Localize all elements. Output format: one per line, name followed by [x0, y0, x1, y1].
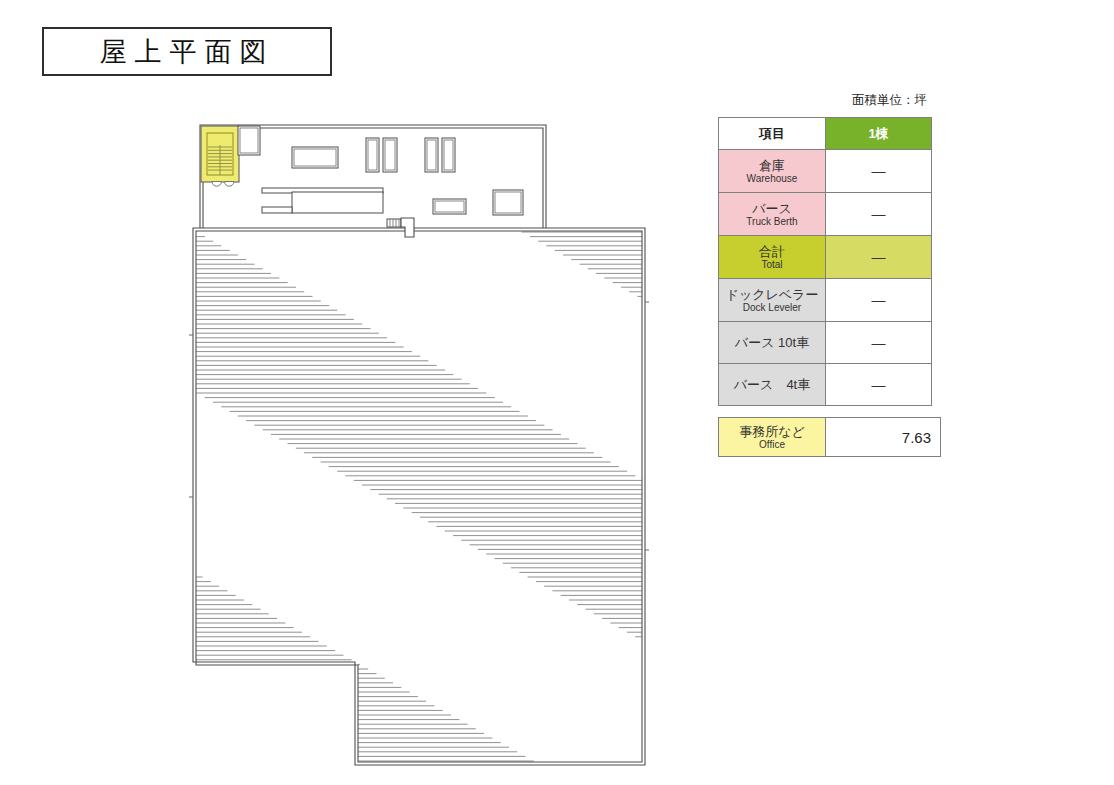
row-value: 7.63 [826, 418, 941, 457]
row-label-ja: バース [719, 201, 825, 217]
roof-vent [442, 138, 455, 172]
row-value: ― [826, 236, 932, 279]
table-row-berth-4t: バース 4t車 ― [719, 364, 932, 406]
roof-equipment-box [493, 190, 523, 215]
roof-vent [366, 138, 379, 172]
row-label: ドックレベラー Dock Leveler [719, 279, 826, 322]
row-value: ― [826, 150, 932, 193]
elevator-shaft [238, 126, 260, 155]
row-label: バース Truck Berth [719, 193, 826, 236]
table-row-dock-leveler: ドックレベラー Dock Leveler ― [719, 279, 932, 322]
row-value: ― [826, 279, 932, 322]
row-label-ja: 事務所など [719, 424, 825, 440]
row-label-ja: 合計 [719, 244, 825, 260]
row-label-ja: バース 10t車 [719, 335, 825, 351]
row-label-en: Total [719, 259, 825, 270]
roof-vent [383, 138, 397, 172]
row-label-ja: 倉庫 [719, 158, 825, 174]
table-row-berth: バース Truck Berth ― [719, 193, 932, 236]
office-area-table: 事務所など Office 7.63 [718, 417, 941, 457]
row-label-ja: ドックレベラー [719, 287, 825, 303]
page-title-box: 屋上平面図 [42, 27, 332, 76]
row-label: 合計 Total [719, 236, 826, 279]
row-value: ― [826, 364, 932, 406]
row-value: ― [826, 322, 932, 364]
table-row-berth-10t: バース 10t車 ― [719, 322, 932, 364]
roof-service-bars [262, 188, 383, 213]
row-label: バース 4t車 [719, 364, 826, 406]
stairwell [201, 126, 239, 186]
row-value: ― [826, 193, 932, 236]
drain-notch [387, 218, 414, 237]
area-summary-table: 項目 1棟 倉庫 Warehouse ― バース Truck Berth ― [718, 117, 932, 406]
col-header-building: 1棟 [826, 118, 932, 150]
page-title: 屋上平面図 [100, 34, 275, 70]
roof-outline [193, 228, 645, 765]
row-label: バース 10t車 [719, 322, 826, 364]
row-label-en: Office [719, 439, 825, 450]
table-row-office: 事務所など Office 7.63 [719, 418, 941, 457]
row-label-en: Dock Leveler [719, 302, 825, 313]
col-header-item: 項目 [719, 118, 826, 150]
slope-hatch-stripes [196, 232, 642, 761]
roof-equipment-box [292, 147, 338, 168]
row-label-en: Warehouse [719, 173, 825, 184]
row-label: 倉庫 Warehouse [719, 150, 826, 193]
table-header-row: 項目 1棟 [719, 118, 932, 150]
table-row-warehouse: 倉庫 Warehouse ― [719, 150, 932, 193]
row-label-en: Truck Berth [719, 216, 825, 227]
roof-vent [425, 138, 438, 172]
drawing-sheet: 屋上平面図 面積単位：坪 項目 1棟 倉庫 Warehouse ― バース Tr… [0, 0, 1114, 785]
area-unit-note: 面積単位：坪 [852, 92, 927, 109]
floor-plan-drawing [0, 0, 1114, 785]
row-label-ja: バース 4t車 [719, 377, 825, 393]
roof-equipment-box [433, 199, 466, 214]
table-row-total: 合計 Total ― [719, 236, 932, 279]
row-label: 事務所など Office [719, 418, 826, 457]
